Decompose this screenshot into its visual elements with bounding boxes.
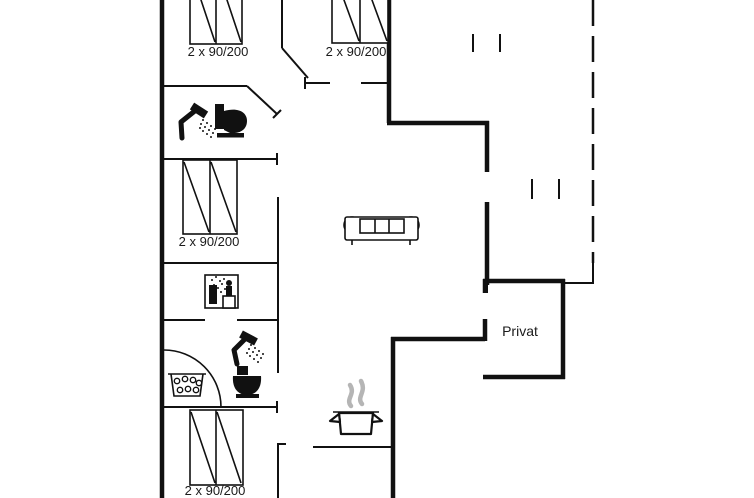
double-bed-icon-bedroom2 [332,0,388,43]
private-room-label: Privat [502,323,538,339]
cooking-pot-icon [330,381,382,434]
shower-spray-dots [199,119,216,138]
whirlpool-bubbles [174,376,201,392]
bed-size-label-bedroom4: 2 x 90/200 [185,483,246,498]
steam-line [360,381,363,404]
wall-bedroom1-corner-diagonal [282,48,308,78]
toilet-icon-bath1 [215,104,247,138]
toilet-icon-bath2 [233,366,261,398]
shower-icon-bath2 [234,334,264,364]
double-bed-icon-bedroom3 [183,160,237,234]
floor-plan: 2 x 90/200 2 x 90/200 2 x 90/200 2 x 90/… [0,0,754,498]
bed-size-label-bedroom1: 2 x 90/200 [188,44,249,59]
bed-size-label-bedroom2: 2 x 90/200 [326,44,387,59]
terrace-step-markers [473,34,559,199]
whirlpool-icon [168,374,206,396]
steam-line [349,385,352,406]
whirlpool-corner-arc [164,350,221,407]
double-bed-icon-bedroom4 [190,410,243,485]
sauna-bench [223,296,235,308]
shower-icon-bath1 [181,106,216,138]
shower-spray-dots [246,344,264,363]
double-bed-icon-bedroom1 [190,0,242,44]
sofa-icon [344,217,419,245]
wall-bath1-diagonal [247,86,277,114]
sauna-icon [205,275,238,308]
bed-size-label-bedroom3: 2 x 90/200 [179,234,240,249]
